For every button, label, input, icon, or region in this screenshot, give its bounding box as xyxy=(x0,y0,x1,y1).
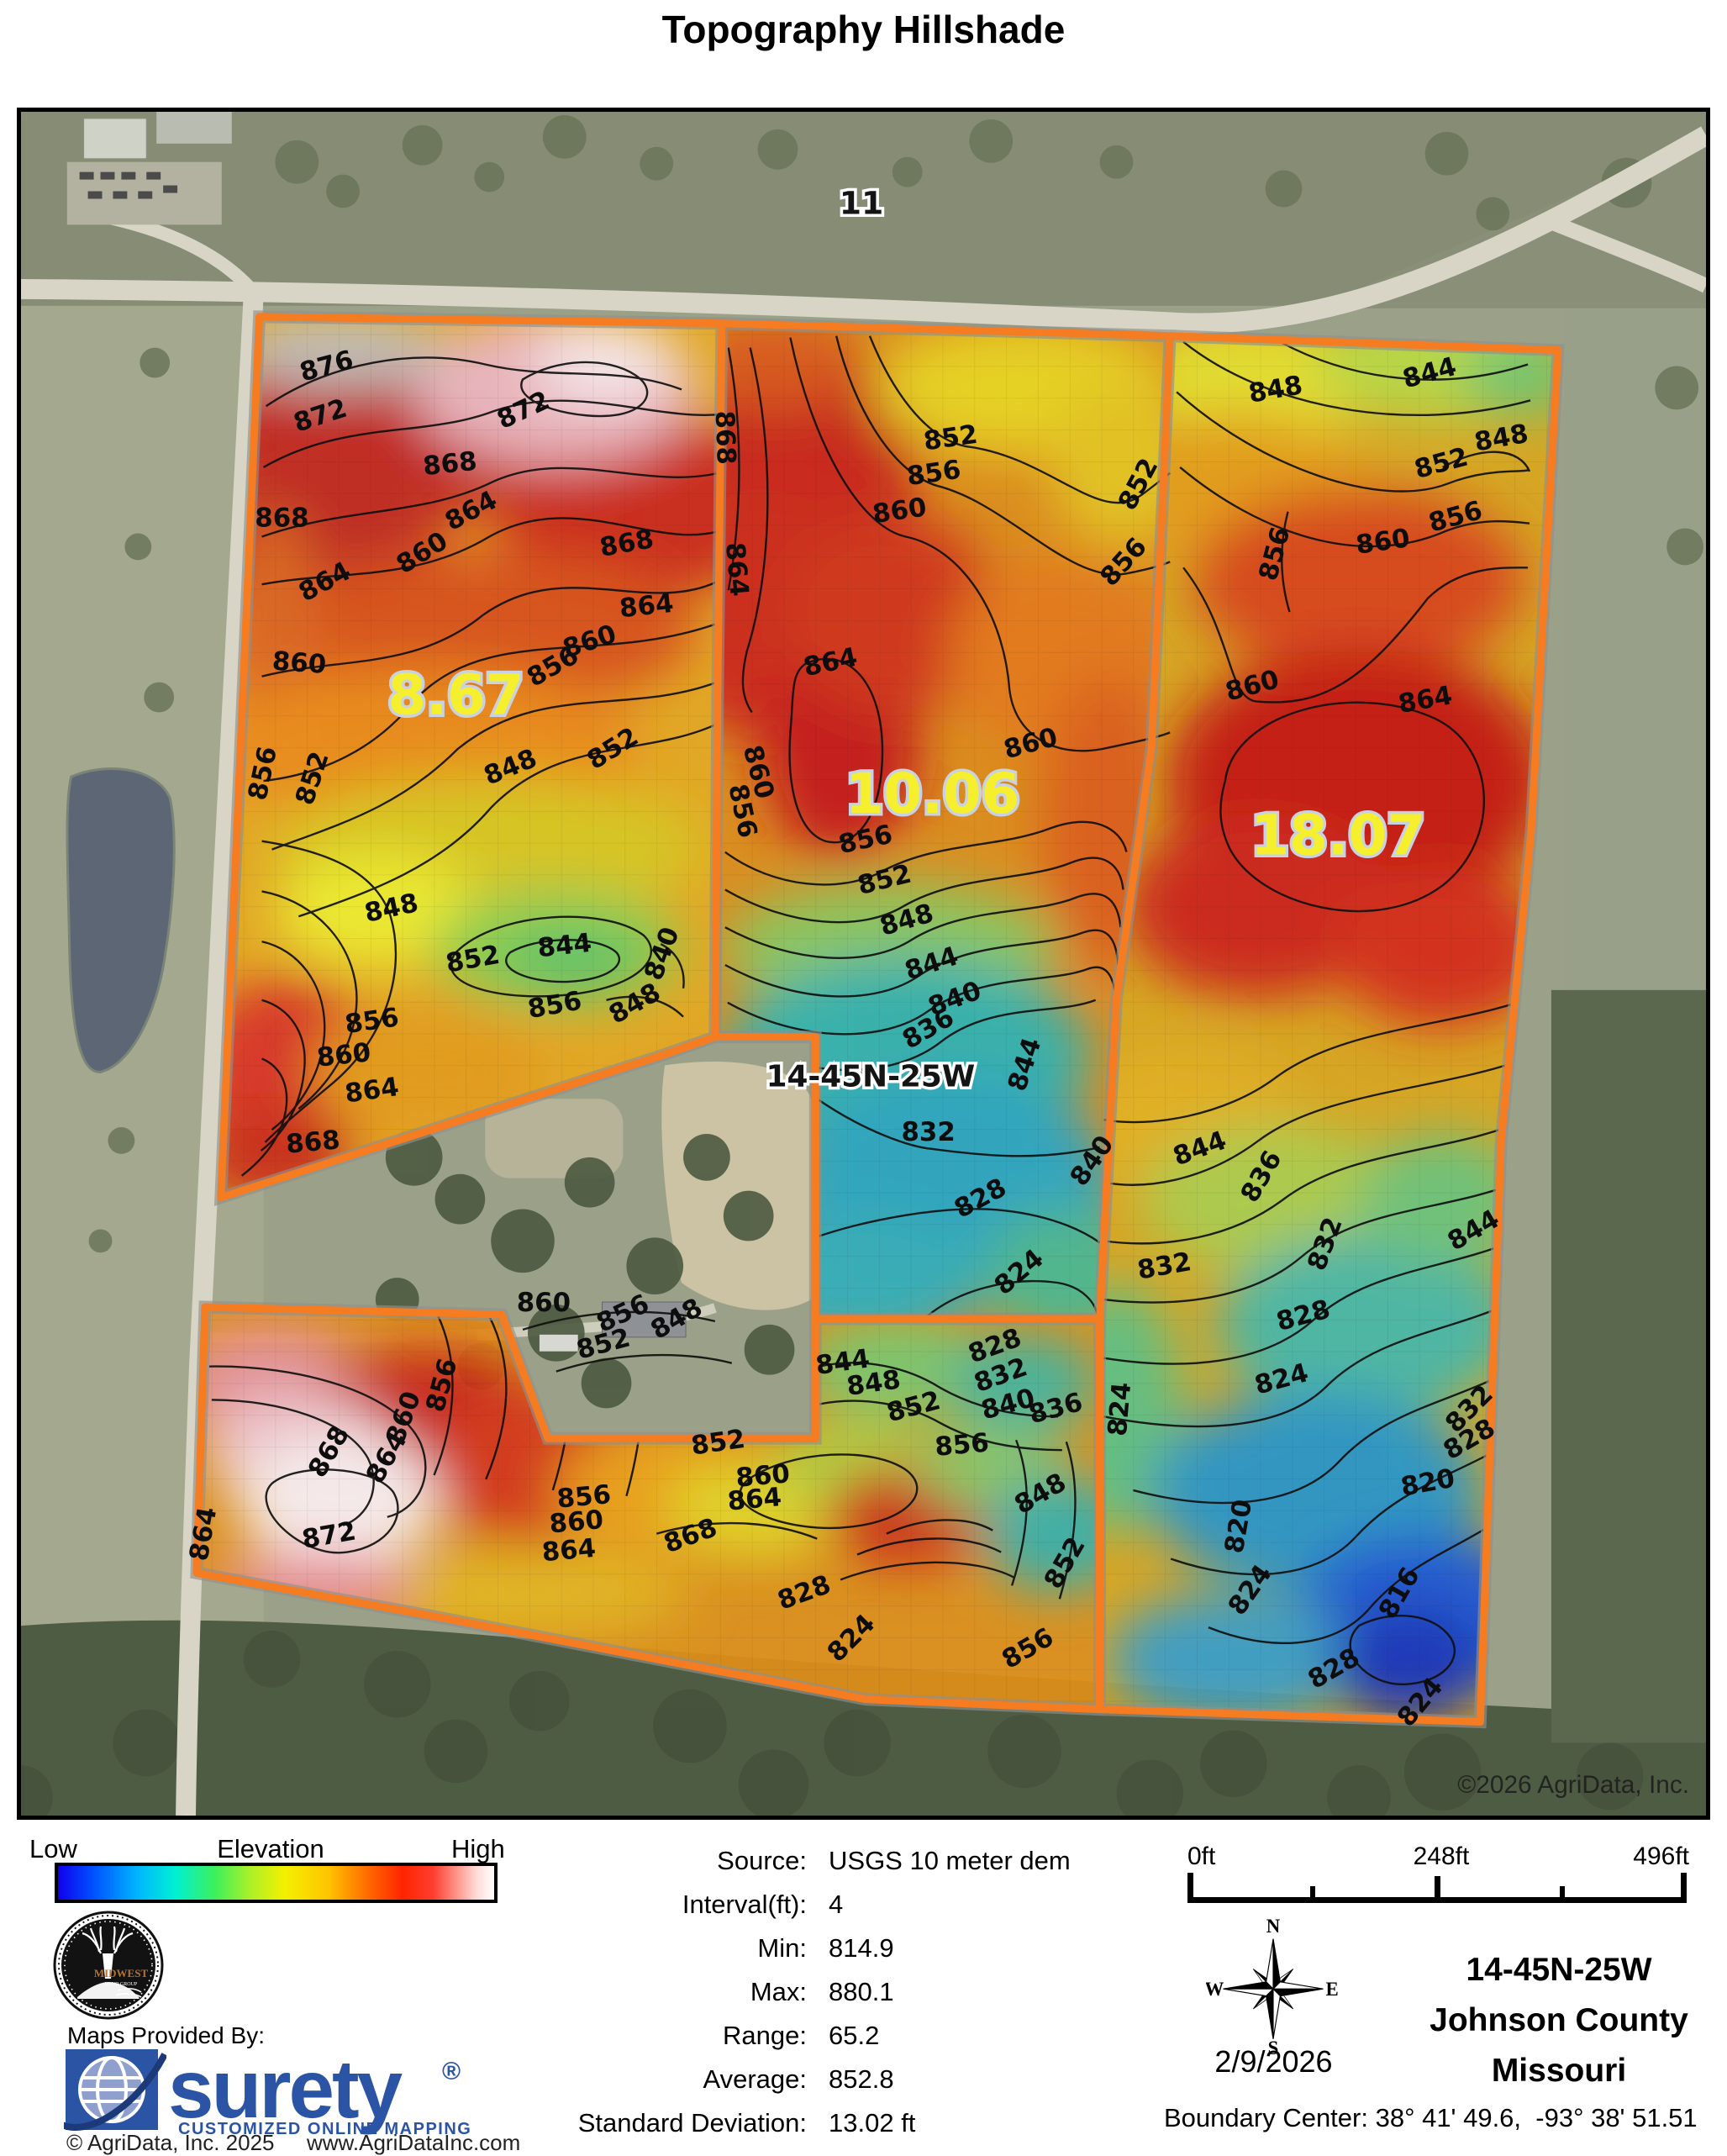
stat-label: Max: xyxy=(504,1977,807,2007)
map-copyright: ©2026 AgriData, Inc. xyxy=(1457,1771,1689,1799)
agridata-copyright: © AgriData, Inc. 2025 xyxy=(66,2130,275,2156)
stat-label: Standard Deviation: xyxy=(504,2108,807,2138)
compass-rose: N E S W xyxy=(1206,1918,1340,2061)
topography-map-svg: 8768728728688688648688608648648608608568… xyxy=(21,112,1706,1816)
surety-logo-text: surety xyxy=(168,2048,400,2130)
parcel-acreage-label: 18.07 xyxy=(1250,804,1425,868)
legend-title: Elevation xyxy=(195,1834,346,1864)
contour-label: 868 xyxy=(422,446,479,482)
stat-value: USGS 10 meter dem xyxy=(829,1846,1071,1876)
map-date: 2/9/2026 xyxy=(1187,2044,1360,2080)
stat-label: Min: xyxy=(504,1933,807,1964)
registered-mark: ® xyxy=(442,2058,461,2086)
agridata-website: www.AgriDataInc.com xyxy=(307,2130,520,2156)
compass-west-label: W xyxy=(1206,1979,1224,2000)
page-title: Topography Hillshade xyxy=(0,7,1727,52)
stat-label: Source: xyxy=(504,1846,807,1876)
stat-value: 852.8 xyxy=(829,2064,894,2095)
section-number-label: 11 xyxy=(840,184,884,221)
location-state: Missouri xyxy=(1391,2053,1727,2090)
midwest-land-group-logo: MIDWEST LAND GROUP xyxy=(52,1910,165,2021)
contour-label: 860 xyxy=(517,1288,571,1318)
contour-label: 868 xyxy=(709,410,741,466)
contour-label: 860 xyxy=(315,1037,372,1073)
stat-value: 814.9 xyxy=(829,1933,894,1964)
scalebar-end-label: 496ft xyxy=(1622,1842,1689,1871)
compass-north-label: N xyxy=(1266,1918,1281,1937)
stat-row: Interval(ft):4 xyxy=(504,1883,1202,1927)
contour-label: 864 xyxy=(719,541,754,598)
location-section: 14-45N-25W xyxy=(1391,1952,1727,1989)
stat-label: Interval(ft): xyxy=(504,1890,807,1920)
contour-label: 844 xyxy=(536,928,593,964)
location-county: Johnson County xyxy=(1391,2002,1727,2039)
contour-label: 864 xyxy=(540,1533,597,1568)
stat-row: Source:USGS 10 meter dem xyxy=(504,1839,1202,1883)
township-range-label: 14-45N-25W xyxy=(766,1059,976,1094)
compass-east-label: E xyxy=(1325,1979,1338,2000)
scalebar xyxy=(1187,1873,1687,1905)
contour-label: 824 xyxy=(1103,1381,1137,1437)
contour-label: 868 xyxy=(255,503,308,534)
scalebar-middle-label: 248ft xyxy=(1374,1842,1508,1871)
surety-globe-icon xyxy=(64,2048,166,2133)
contour-label: 832 xyxy=(901,1117,955,1147)
stat-value: 880.1 xyxy=(829,1977,894,2007)
midwest-logo-subtext: LAND GROUP xyxy=(105,1982,138,1987)
stat-label: Range: xyxy=(504,2021,807,2051)
scalebar-start-label: 0ft xyxy=(1187,1842,1215,1871)
stat-row: Max:880.1 xyxy=(504,1970,1202,2014)
stat-value: 13.02 ft xyxy=(829,2108,915,2138)
boundary-center: Boundary Center: 38° 41' 49.6, -93° 38' … xyxy=(1164,2103,1698,2133)
contour-label: 860 xyxy=(271,646,328,680)
contour-label: 864 xyxy=(618,588,675,625)
stat-value: 4 xyxy=(829,1890,843,1920)
legend-low-label: Low xyxy=(29,1834,77,1864)
stat-value: 65.2 xyxy=(829,2021,879,2051)
parcel-acreage-label: 10.06 xyxy=(845,762,1020,826)
contour-label: 856 xyxy=(934,1427,990,1462)
contour-label: 868 xyxy=(285,1125,341,1159)
stats-block: Source:USGS 10 meter dem Interval(ft):4 … xyxy=(504,1839,1202,2145)
stat-row: Average:852.8 xyxy=(504,2058,1202,2101)
midwest-logo-text: MIDWEST xyxy=(94,1967,149,1979)
contour-label: 864 xyxy=(726,1482,782,1516)
stat-row: Range:65.2 xyxy=(504,2014,1202,2058)
legend-high-label: High xyxy=(451,1834,505,1864)
parcel-acreage-label: 8.67 xyxy=(387,663,524,727)
elevation-gradient xyxy=(55,1863,498,1903)
stat-row: Min:814.9 xyxy=(504,1927,1202,1970)
stat-label: Average: xyxy=(504,2064,807,2095)
map-image: 8768728728688688648688608648648608608568… xyxy=(17,108,1710,1820)
stat-row: Standard Deviation:13.02 ft xyxy=(504,2101,1202,2145)
